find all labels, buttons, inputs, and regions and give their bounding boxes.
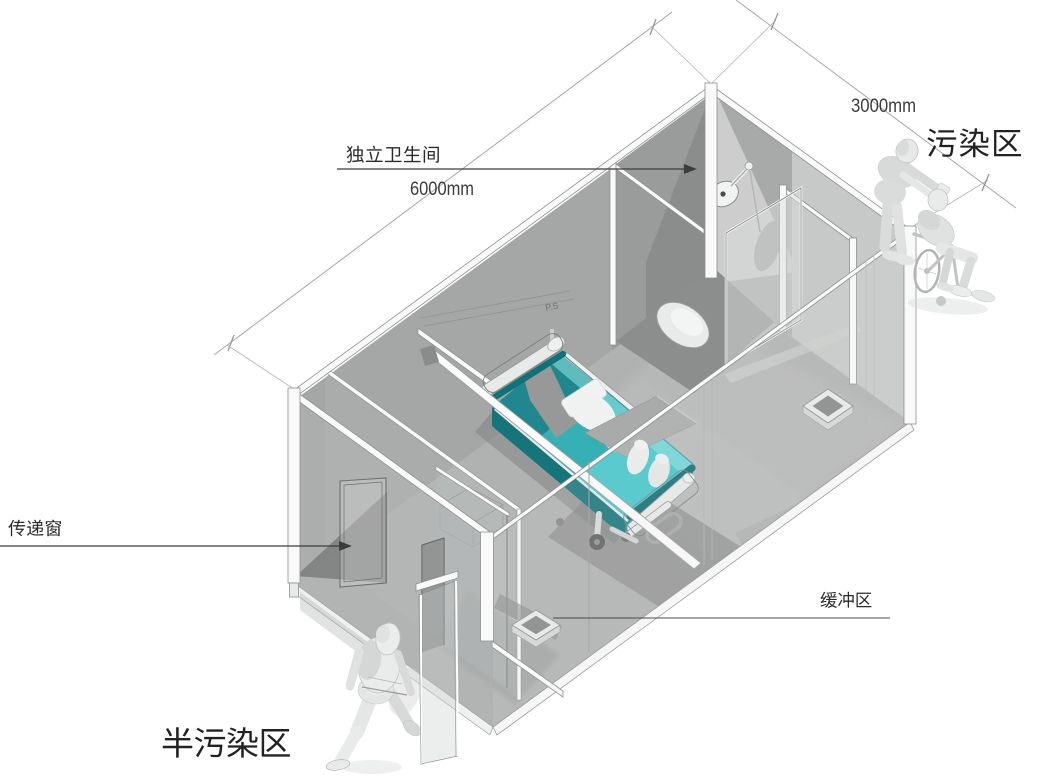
svg-text:6000mm: 6000mm [410, 179, 474, 200]
svg-text:3000mm: 3000mm [851, 96, 916, 117]
